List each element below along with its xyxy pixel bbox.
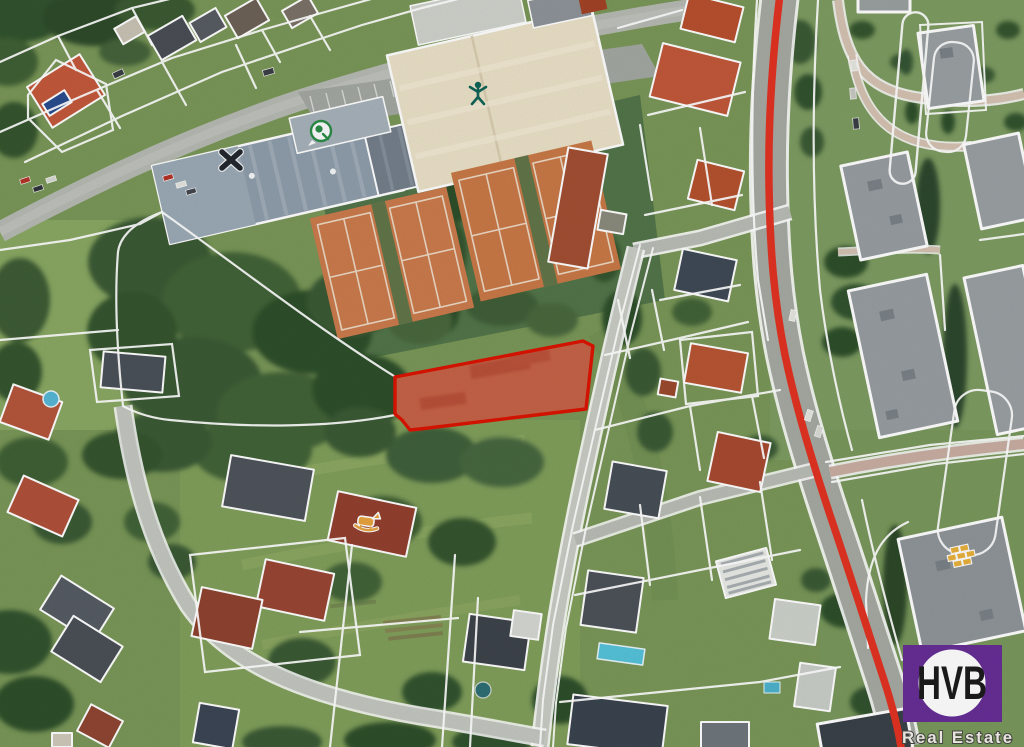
aerial-map-image: HVB Real Estate [0, 0, 1024, 747]
map-canvas: HVB Real Estate [0, 0, 1024, 747]
grain-overlay [0, 0, 1024, 747]
